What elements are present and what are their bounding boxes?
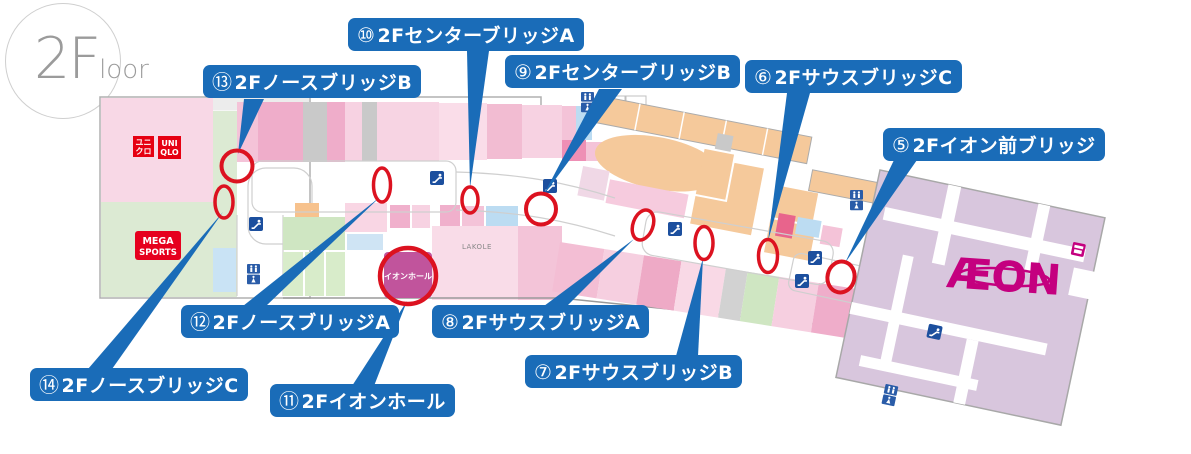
circled-number-7: ⑦ [534, 362, 552, 382]
food-court-area [574, 95, 890, 272]
escalator-icon [926, 324, 943, 341]
escalator-icon [795, 274, 809, 288]
circled-number-11: ⑪ [279, 391, 300, 411]
shop-icon [1071, 242, 1086, 257]
mega-top: MEGA [142, 236, 174, 247]
escalator-icon [249, 217, 263, 231]
aeon-hall-block[interactable]: イオンホール [384, 252, 432, 298]
circled-number-8: ⑧ [441, 312, 459, 332]
bridge-label-10-text: 2FセンターブリッジA [377, 21, 574, 48]
bridge-label-13-text: 2FノースブリッジB [235, 68, 413, 95]
bridge-label-7[interactable]: ⑦2FサウスブリッジB [525, 355, 742, 388]
bridge-label-6[interactable]: ⑥2FサウスブリッジC [745, 60, 962, 93]
uniqlo-area[interactable] [101, 98, 213, 202]
marker-12[interactable] [374, 168, 391, 202]
mega-bottom: SPORTS [139, 248, 177, 258]
bridge-label-11-text: 2Fイオンホール [302, 387, 446, 414]
circled-number-5: ⑤ [892, 135, 910, 155]
bridge-label-7-text: 2FサウスブリッジB [554, 358, 733, 385]
lakole-label: LAKOLE [462, 243, 492, 251]
uniqlo-jp-top: ユニ [136, 138, 152, 147]
bridge-label-12-text: 2FノースブリッジA [213, 308, 391, 335]
bridge-label-10[interactable]: ⑩2FセンターブリッジA [348, 18, 584, 51]
circled-number-13: ⑬ [212, 72, 233, 92]
marker-8[interactable] [628, 207, 657, 243]
escalator-icon [808, 251, 822, 265]
escalator-icon [430, 171, 444, 185]
bridge-label-13[interactable]: ⑬2FノースブリッジB [203, 65, 421, 98]
escalator-icon [668, 222, 682, 236]
marker-7[interactable] [695, 227, 713, 260]
circled-number-12: ⑫ [190, 312, 211, 332]
circled-number-6: ⑥ [754, 67, 772, 87]
circled-number-9: ⑨ [514, 62, 532, 82]
bridge-label-14[interactable]: ⑭2FノースブリッジC [30, 368, 248, 401]
floor-map-page: 2Floor [0, 0, 1191, 454]
bridge-label-5[interactable]: ⑤2Fイオン前ブリッジ [883, 128, 1105, 161]
circled-number-10: ⑩ [357, 25, 375, 45]
aeon-hall-label: イオンホール [384, 272, 432, 281]
bridge-label-11[interactable]: ⑪2Fイオンホール [270, 384, 455, 417]
uniqlo-jp-bottom: クロ [136, 146, 152, 156]
uniqlo-en-top: UNI [161, 139, 177, 148]
bridge-label-14-text: 2FノースブリッジC [62, 371, 239, 398]
marker-9[interactable] [526, 194, 556, 225]
bridge-label-8[interactable]: ⑧2FサウスブリッジA [432, 305, 649, 338]
lakole-area[interactable] [432, 226, 518, 300]
bridge-label-6-text: 2FサウスブリッジC [774, 63, 952, 90]
aeon-logo: ÆON [945, 248, 1062, 305]
uniqlo-en-bottom: QLO [160, 148, 179, 157]
mega-sports-logo: MEGA SPORTS [135, 231, 181, 260]
circled-number-14: ⑭ [39, 375, 60, 395]
bridge-label-5-text: 2Fイオン前ブリッジ [912, 131, 1095, 158]
bridge-label-9-text: 2FセンターブリッジB [534, 58, 731, 85]
bridge-label-8-text: 2FサウスブリッジA [461, 308, 640, 335]
bridge-label-9[interactable]: ⑨2FセンターブリッジB [505, 55, 740, 88]
bridge-label-12[interactable]: ⑫2FノースブリッジA [181, 305, 399, 338]
